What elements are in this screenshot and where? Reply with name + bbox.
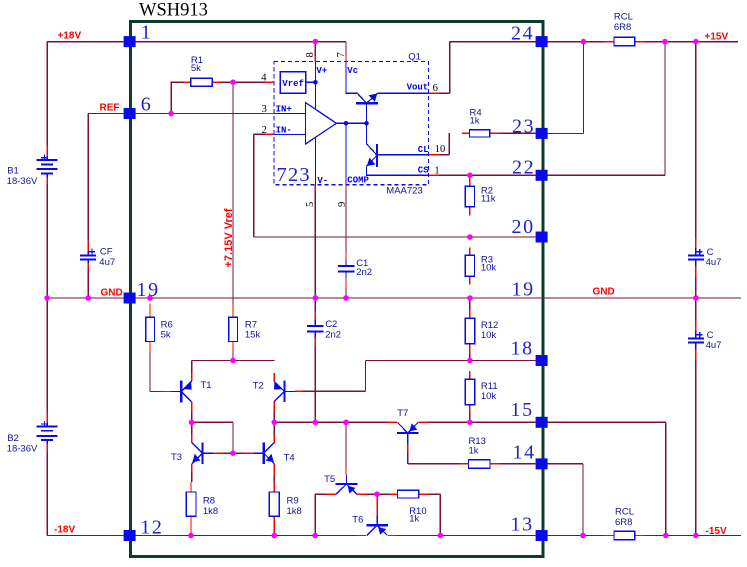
svg-text:6R8: 6R8 xyxy=(614,22,631,33)
svg-text:T1: T1 xyxy=(201,380,212,391)
svg-text:1k: 1k xyxy=(469,446,479,457)
svg-text:REF: REF xyxy=(100,103,120,114)
svg-text:5: 5 xyxy=(305,202,316,207)
svg-text:723: 723 xyxy=(277,164,311,186)
svg-text:4u7: 4u7 xyxy=(706,340,722,351)
svg-text:3: 3 xyxy=(262,104,267,115)
svg-text:Q1: Q1 xyxy=(408,52,421,63)
svg-text:22: 22 xyxy=(512,157,535,179)
svg-text:10k: 10k xyxy=(481,330,497,341)
svg-text:T2: T2 xyxy=(253,381,264,392)
svg-text:15: 15 xyxy=(511,399,534,421)
svg-text:Vc: Vc xyxy=(347,66,358,76)
svg-text:T6: T6 xyxy=(352,515,363,526)
svg-text:+7.15V Vref: +7.15V Vref xyxy=(223,208,235,267)
svg-text:1k: 1k xyxy=(470,115,480,126)
svg-text:Vref: Vref xyxy=(282,79,304,89)
svg-text:12: 12 xyxy=(140,516,163,538)
svg-text:10k: 10k xyxy=(481,263,497,274)
svg-text:19: 19 xyxy=(512,279,535,301)
svg-text:6R8: 6R8 xyxy=(615,517,632,528)
svg-text:13: 13 xyxy=(511,514,534,536)
svg-text:T5: T5 xyxy=(324,474,335,485)
svg-text:2n2: 2n2 xyxy=(325,329,341,340)
svg-text:5k: 5k xyxy=(161,330,171,341)
svg-text:IN+: IN+ xyxy=(276,105,292,115)
svg-text:9: 9 xyxy=(337,202,348,207)
svg-text:11k: 11k xyxy=(481,194,496,205)
svg-text:10: 10 xyxy=(435,144,446,155)
svg-text:T7: T7 xyxy=(397,408,408,419)
svg-text:GND: GND xyxy=(101,287,123,298)
svg-text:+18V: +18V xyxy=(58,31,82,42)
svg-text:4u7: 4u7 xyxy=(706,257,722,268)
svg-text:COMP: COMP xyxy=(347,176,369,186)
svg-text:V-: V- xyxy=(317,176,328,186)
svg-text:24: 24 xyxy=(511,22,534,44)
svg-text:4u7: 4u7 xyxy=(99,257,115,268)
svg-text:B2: B2 xyxy=(7,433,19,444)
svg-text:CS: CS xyxy=(418,166,429,176)
svg-text:23: 23 xyxy=(512,116,535,138)
svg-text:B1: B1 xyxy=(7,165,19,176)
svg-text:T3: T3 xyxy=(171,452,182,463)
svg-text:MAA723: MAA723 xyxy=(386,186,422,197)
svg-text:1k8: 1k8 xyxy=(287,506,302,517)
svg-text:15k: 15k xyxy=(245,330,261,341)
svg-text:1: 1 xyxy=(434,166,439,177)
svg-text:18-36V: 18-36V xyxy=(7,444,38,455)
svg-text:2n2: 2n2 xyxy=(356,267,372,278)
svg-text:R8: R8 xyxy=(203,495,215,506)
svg-text:14: 14 xyxy=(513,442,536,464)
svg-text:WSH913: WSH913 xyxy=(139,1,208,21)
svg-text:2: 2 xyxy=(262,125,267,136)
svg-text:20: 20 xyxy=(512,216,535,238)
svg-text:IN-: IN- xyxy=(276,126,292,136)
svg-text:+15V: +15V xyxy=(705,32,729,43)
svg-text:R9: R9 xyxy=(287,495,299,506)
svg-text:CL: CL xyxy=(418,145,429,155)
svg-text:Vout: Vout xyxy=(407,83,429,93)
svg-text:1k8: 1k8 xyxy=(203,506,218,517)
svg-text:-15V: -15V xyxy=(706,526,727,537)
svg-text:-18V: -18V xyxy=(54,525,75,536)
svg-text:7: 7 xyxy=(336,52,347,57)
svg-text:GND: GND xyxy=(593,286,615,297)
svg-text:18: 18 xyxy=(511,338,534,360)
svg-text:18-36V: 18-36V xyxy=(7,176,38,187)
svg-text:1k: 1k xyxy=(409,514,419,525)
svg-text:4: 4 xyxy=(261,73,267,84)
svg-text:6: 6 xyxy=(433,83,438,94)
svg-text:8: 8 xyxy=(305,52,316,57)
svg-text:19: 19 xyxy=(137,279,160,301)
svg-text:6: 6 xyxy=(141,94,151,116)
svg-text:V+: V+ xyxy=(316,66,327,76)
svg-text:T4: T4 xyxy=(284,452,295,463)
svg-text:CF: CF xyxy=(100,246,113,257)
svg-text:5k: 5k xyxy=(191,63,201,74)
svg-text:10k: 10k xyxy=(481,391,497,402)
svg-text:1: 1 xyxy=(141,21,151,43)
